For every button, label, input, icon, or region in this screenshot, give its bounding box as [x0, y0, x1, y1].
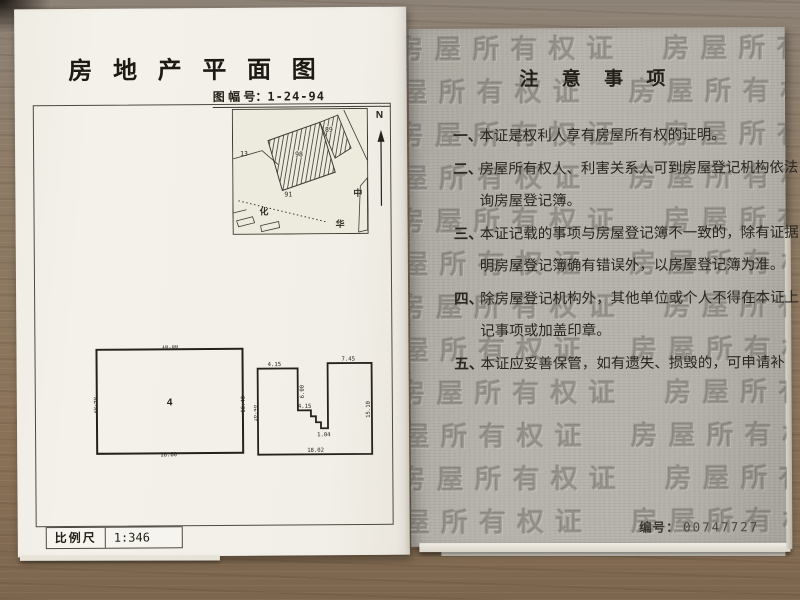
map-char-hua2: 华 — [336, 218, 345, 229]
notice-item-number: 一、 — [453, 121, 479, 154]
dim-top-left: 4.15 — [268, 362, 282, 368]
cadastral-map: 13 89 98 91 化 中 华 — [232, 108, 369, 235]
notice-item: 二、房屋所有权人、利害关系人可到房屋登记机构依法 询房屋登记簿。 — [453, 152, 775, 219]
notice-item-text: 本证记载的事项与房屋登记簿不一致的，除有证据 — [480, 224, 799, 242]
notice-title: 注 意 事 项 — [409, 63, 785, 92]
serial-number: 00747727 — [683, 519, 759, 534]
notice-item-text: 本证应妥善保管，如有遗失、损毁的，可申请补 — [480, 355, 785, 373]
sheet-number-value: 1-24-94 — [267, 89, 325, 103]
scale-table: 比例尺 1:346 — [46, 526, 183, 549]
notice-item-text: 明房屋登记簿确有错误外，以房屋登记簿为准。 — [480, 257, 785, 275]
notice-page: 房屋所有权证 房屋所有权证 房屋所有权证 房屋所有权证 房屋所有权证 房屋所有权… — [409, 27, 788, 547]
map-parcel-13: 13 — [240, 150, 248, 158]
notice-item: 三、本证记载的事项与房屋登记簿不一致的，除有证据 明房屋登记簿确有错误外，以房屋… — [454, 217, 776, 284]
floor-plan-unit-4: 4 18.80 18.80 16.40 16.40 — [93, 345, 246, 458]
map-road-91: 91 — [284, 190, 292, 198]
notice-item-text: 记事项或加盖印章。 — [480, 323, 611, 340]
page-title: 房 地 产 平 面 图 — [14, 49, 376, 87]
notice-content: 注 意 事 项 一、本证是权利人享有房屋所有权的证明。 二、房屋所有权人、利害关… — [409, 27, 788, 547]
serial-label: 编号： — [639, 521, 680, 535]
notice-item: 四、除房屋登记机构外，其他单位或个人不得在本证上 记事项或加盖印章。 — [454, 282, 776, 349]
dim-left: 16.40 — [93, 397, 97, 414]
scale-label: 比例尺 — [47, 528, 106, 548]
dim-inner-horizontal: 4.15 — [298, 404, 312, 410]
dim-bottom: 18.02 — [307, 448, 324, 454]
left-page-edge — [20, 555, 220, 560]
notice-item-text: 本证是权利人享有房屋所有权的证明。 — [479, 127, 726, 144]
map-building-98: 98 — [295, 150, 303, 158]
unit-number: 4 — [167, 397, 173, 408]
north-arrow: N — [372, 106, 391, 218]
notice-item-number: 四、 — [454, 283, 480, 316]
notice-item-number: 二、 — [453, 153, 479, 186]
plan-frame: 13 89 98 91 化 中 华 — [33, 103, 394, 527]
dim-outer-right: 15.10 — [366, 401, 372, 418]
notice-item-text: 房屋所有权人、利害关系人可到房屋登记机构依法 — [479, 159, 798, 177]
map-building-89: 89 — [325, 126, 333, 134]
notice-list: 一、本证是权利人享有房屋所有权的证明。 二、房屋所有权人、利害关系人可到房屋登记… — [453, 119, 776, 381]
notice-item: 五、本证应妥善保管，如有遗失、损毁的，可申请补 — [454, 347, 776, 381]
notice-item-number: 三、 — [454, 218, 480, 251]
floor-plan-page: 房 地 产 平 面 图 图 幅 号：1-24-94 13 89 — [14, 7, 410, 558]
dim-right: 16.40 — [241, 396, 246, 413]
dim-outer-left: 16.40 — [253, 405, 258, 422]
desk-surface: 房 地 产 平 面 图 图 幅 号：1-24-94 13 89 — [0, 0, 800, 600]
notice-item-text: 除房屋登记机构外，其他单位或个人不得在本证上 — [480, 289, 799, 307]
map-char-hua1: 化 — [259, 206, 268, 217]
dim-bottom: 18.80 — [160, 452, 177, 458]
dim-top: 18.80 — [161, 345, 178, 350]
dim-inner-vertical: 6.00 — [300, 385, 306, 399]
serial-number-row: 编号： 00747727 — [639, 516, 759, 536]
notice-item-text: 询房屋登记簿。 — [480, 193, 582, 210]
notice-item: 一、本证是权利人享有房屋所有权的证明。 — [453, 119, 775, 153]
sheet-number-label: 图 幅 号： — [213, 90, 268, 104]
dim-top-right: 7.45 — [342, 357, 356, 363]
dim-step: 1.04 — [317, 432, 331, 438]
floor-plan-notched: 4.15 7.45 6.00 4.15 1.04 18.02 16.40 15.… — [253, 336, 382, 464]
north-label: N — [376, 110, 383, 121]
notice-item-number: 五、 — [454, 348, 480, 381]
map-char-zhong: 中 — [353, 187, 362, 198]
scale-value: 1:346 — [106, 527, 182, 548]
